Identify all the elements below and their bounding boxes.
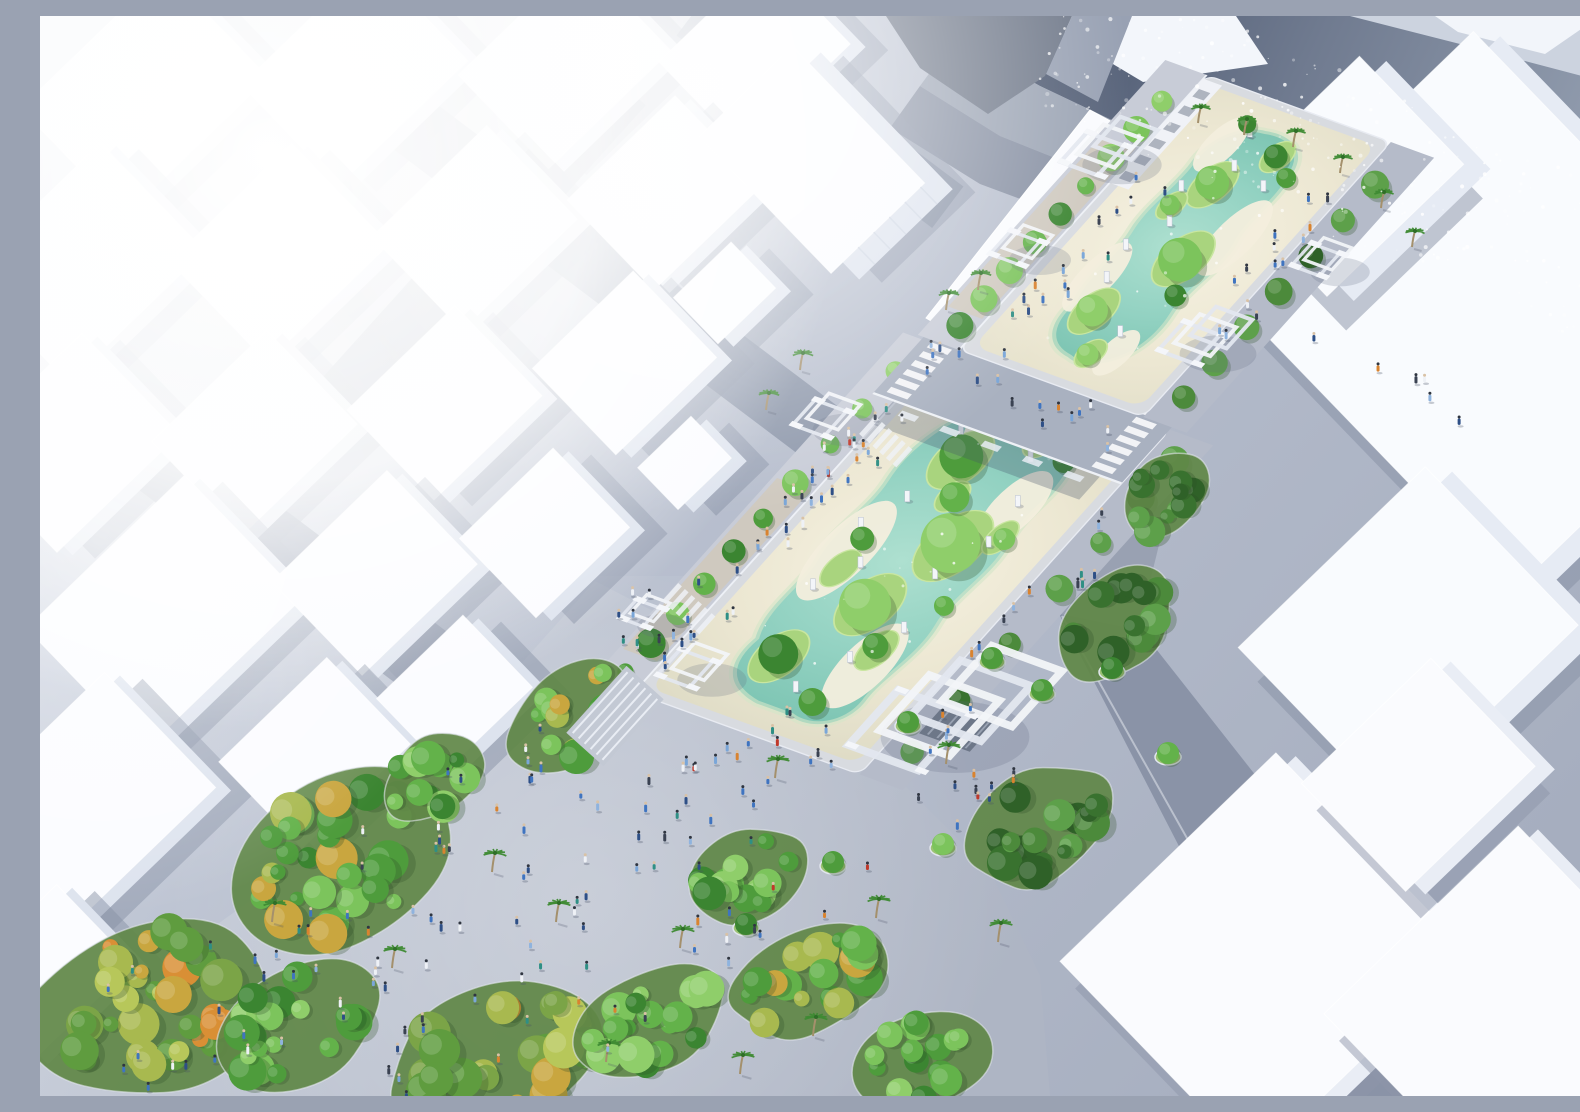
person-shadow (122, 1073, 128, 1075)
water-sparkle (1530, 305, 1532, 307)
palm-crown (1245, 117, 1249, 121)
person (1274, 262, 1277, 267)
person-head (1245, 264, 1248, 267)
person-head (1273, 242, 1276, 245)
water-sparkle (1457, 156, 1459, 158)
water-sparkle (1344, 210, 1348, 214)
water-sparkle (1283, 83, 1287, 87)
water-sparkle (1443, 151, 1445, 153)
water-sparkle (1300, 117, 1302, 119)
water-sparkle (1465, 245, 1469, 249)
person (403, 1029, 406, 1035)
person (577, 999, 580, 1004)
person-head (1312, 332, 1315, 335)
water-sparkle (1406, 110, 1408, 112)
palm-crown (1413, 229, 1417, 233)
water-sparkle (1316, 138, 1318, 140)
person-shadow (1458, 425, 1464, 427)
water-sparkle (1375, 120, 1379, 124)
water-sparkle (1236, 147, 1239, 150)
water-sparkle (1503, 209, 1507, 213)
water-sparkle (1396, 250, 1397, 251)
water-sparkle (1447, 259, 1449, 261)
water-sparkle (1314, 68, 1315, 69)
person (372, 981, 375, 986)
person-head (280, 1036, 283, 1039)
water-sparkle (1311, 167, 1315, 171)
water-sparkle (1256, 35, 1259, 38)
person (122, 1067, 125, 1073)
water-sparkle (1572, 325, 1575, 328)
water-sparkle (1246, 39, 1250, 43)
person-shadow (137, 1060, 143, 1062)
water-sparkle (1452, 136, 1454, 138)
person-head (421, 1012, 424, 1015)
person-head (1274, 259, 1277, 262)
water-sparkle (1196, 155, 1200, 159)
water-sparkle (1220, 227, 1223, 230)
water-sparkle (1525, 250, 1528, 253)
person-shadow (184, 1070, 190, 1072)
person-shadow (1274, 268, 1280, 270)
water-sparkle (1281, 209, 1284, 212)
water-sparkle (1327, 156, 1330, 159)
water-sparkle (1569, 190, 1571, 192)
person-shadow (339, 1008, 345, 1010)
water-sparkle (1260, 96, 1262, 98)
person (339, 1000, 342, 1008)
person (246, 1046, 249, 1054)
person (1307, 196, 1310, 202)
water-sparkle (1526, 260, 1528, 262)
person (137, 1053, 140, 1059)
person-shadow (497, 1063, 503, 1065)
person-shadow (171, 1070, 177, 1072)
person-shadow (1281, 266, 1287, 268)
person-shadow (1273, 251, 1279, 253)
water-sparkle (1300, 96, 1303, 99)
person-head (184, 1060, 187, 1063)
water-sparkle (1466, 211, 1470, 215)
person (613, 1008, 616, 1013)
water-sparkle (1495, 198, 1499, 202)
person-head (606, 1043, 609, 1046)
tree-highlight (1268, 280, 1282, 294)
person (387, 1068, 390, 1075)
person-shadow (1414, 384, 1420, 386)
person-shadow (1246, 309, 1252, 311)
water-sparkle (1212, 197, 1215, 200)
person-head (1246, 299, 1249, 302)
person-head (396, 1043, 399, 1046)
water-sparkle (1574, 209, 1575, 210)
water-sparkle (1258, 214, 1261, 217)
water-sparkle (1341, 188, 1344, 191)
person-head (387, 1065, 390, 1068)
water-sparkle (1561, 330, 1564, 333)
water-sparkle (1256, 152, 1259, 155)
person-head (1326, 192, 1329, 195)
person-shadow (1428, 402, 1434, 404)
water-sparkle (1250, 109, 1254, 113)
person-shadow (387, 1075, 393, 1077)
palm-crown (1341, 155, 1345, 159)
water-sparkle (1447, 230, 1450, 233)
person (520, 975, 523, 982)
water-sparkle (1346, 103, 1350, 107)
person-shadow (1225, 340, 1231, 342)
water-sparkle (1213, 170, 1216, 173)
water-sparkle (1518, 292, 1520, 294)
water-sparkle (1314, 64, 1316, 66)
person (644, 1015, 647, 1022)
person-head (246, 1043, 249, 1046)
water-sparkle (1506, 223, 1508, 225)
water-sparkle (1563, 305, 1565, 307)
water-sparkle (1421, 213, 1424, 216)
scene-svg (40, 16, 1580, 1096)
water-sparkle (1419, 253, 1423, 257)
person-head (1307, 193, 1310, 196)
person-head (577, 996, 580, 999)
water-sparkle (1433, 254, 1435, 256)
water-sparkle (1514, 260, 1516, 262)
water-sparkle (1507, 215, 1509, 217)
person-shadow (1233, 284, 1239, 286)
water-sparkle (1363, 164, 1365, 166)
water-sparkle (1230, 54, 1233, 57)
person-head (644, 1012, 647, 1015)
person (1273, 245, 1276, 250)
water-sparkle (1352, 97, 1355, 100)
person-shadow (606, 1052, 612, 1054)
water-sparkle (1340, 143, 1343, 146)
person-shadow (342, 1020, 348, 1022)
person-head (107, 983, 110, 986)
person-shadow (262, 982, 268, 984)
water-sparkle (1343, 184, 1346, 187)
water-sparkle (1307, 142, 1310, 145)
person-head (405, 1090, 408, 1093)
water-sparkle (1290, 111, 1293, 114)
water-sparkle (1483, 172, 1487, 176)
tree-highlight (1278, 169, 1288, 179)
water-sparkle (1371, 144, 1374, 147)
water-sparkle (1216, 70, 1218, 72)
water-sparkle (1342, 210, 1344, 212)
water-sparkle (1252, 180, 1254, 182)
water-sparkle (1221, 19, 1224, 22)
person (606, 1046, 609, 1052)
tree-highlight (1159, 744, 1170, 755)
water-sparkle (1264, 97, 1266, 99)
person (405, 1093, 408, 1096)
person (218, 1007, 221, 1015)
water-sparkle (1299, 124, 1301, 126)
water-sparkle (1210, 41, 1214, 45)
water-sparkle (1393, 260, 1395, 262)
person (1414, 376, 1417, 383)
water-sparkle (1426, 228, 1428, 230)
person-head (213, 1054, 216, 1057)
person-shadow (1326, 203, 1332, 205)
water-sparkle (1339, 166, 1341, 168)
water-sparkle (1444, 136, 1446, 138)
person-head (171, 1060, 174, 1063)
person (1233, 278, 1236, 284)
water-sparkle (1244, 171, 1247, 174)
water-sparkle (1337, 68, 1341, 72)
person (1309, 224, 1312, 231)
person (171, 1063, 174, 1070)
person-shadow (246, 1055, 252, 1057)
person (242, 1032, 245, 1039)
water-sparkle (1522, 172, 1526, 176)
water-sparkle (1313, 137, 1314, 138)
water-sparkle (1347, 97, 1349, 99)
water-sparkle (1509, 195, 1510, 196)
water-sparkle (1523, 210, 1524, 211)
person-shadow (372, 986, 378, 988)
person-head (397, 1073, 400, 1076)
person-head (137, 1050, 140, 1053)
person-shadow (213, 1063, 219, 1065)
water-sparkle (1359, 154, 1363, 158)
water-sparkle (1205, 26, 1209, 30)
water-sparkle (1381, 190, 1383, 192)
person-head (1218, 324, 1221, 327)
person (147, 1085, 150, 1091)
water-sparkle (1462, 247, 1465, 250)
water-sparkle (1243, 44, 1246, 47)
water-sparkle (1566, 326, 1568, 328)
water-sparkle (1318, 122, 1320, 124)
person-shadow (1273, 239, 1279, 241)
person-head (1428, 392, 1431, 395)
water-sparkle (1401, 213, 1403, 215)
palm-crown (1199, 105, 1203, 109)
person (1428, 395, 1431, 402)
water-sparkle (1276, 99, 1278, 101)
person-head (122, 1064, 125, 1067)
water-sparkle (1279, 136, 1281, 138)
water-sparkle (1258, 86, 1262, 90)
water-sparkle (1414, 180, 1416, 182)
person-shadow (242, 1039, 248, 1041)
person (184, 1063, 187, 1070)
person-head (1273, 229, 1276, 232)
palm-crown (1382, 190, 1386, 194)
person-shadow (422, 1033, 428, 1035)
water-sparkle (1362, 186, 1365, 189)
water-sparkle (1341, 208, 1343, 210)
water-sparkle (1424, 245, 1428, 249)
person (473, 997, 476, 1003)
tree-highlight (1364, 173, 1378, 187)
person (1246, 302, 1249, 308)
water-sparkle (1404, 211, 1406, 213)
water-sparkle (1545, 281, 1547, 283)
person-shadow (473, 1003, 479, 1005)
person (107, 986, 110, 992)
person-shadow (1245, 272, 1251, 274)
water-sparkle (1309, 119, 1312, 122)
person-head (1233, 275, 1236, 278)
tree-highlight (1333, 210, 1345, 222)
person-shadow (280, 1045, 286, 1047)
palm-crown (814, 1015, 818, 1019)
person-shadow (1307, 202, 1313, 204)
water-sparkle (1273, 171, 1276, 174)
water-sparkle (1293, 181, 1295, 183)
water-sparkle (1281, 106, 1283, 108)
stone-monolith (1261, 180, 1266, 191)
person-shadow (1312, 342, 1318, 344)
person-head (1309, 221, 1312, 224)
water-sparkle (1542, 259, 1546, 263)
person-shadow (1423, 383, 1429, 385)
water-sparkle (1287, 109, 1290, 112)
haze (40, 156, 560, 976)
water-sparkle (1229, 158, 1233, 162)
water-sparkle (1558, 330, 1560, 332)
person-shadow (396, 1053, 402, 1055)
person-head (1414, 373, 1417, 376)
person-head (1225, 329, 1228, 332)
palm-crown (741, 1053, 745, 1057)
tree-highlight (1266, 146, 1278, 158)
person (1218, 327, 1221, 334)
person-head (218, 1004, 221, 1007)
water-sparkle (1563, 313, 1567, 317)
water-sparkle (1222, 51, 1224, 53)
water-sparkle (1195, 84, 1199, 88)
person (397, 1076, 400, 1082)
person-shadow (1218, 335, 1224, 337)
person-head (372, 978, 375, 981)
person (497, 1056, 500, 1062)
tree-highlight (1199, 168, 1216, 185)
haze-overlay (40, 16, 1190, 976)
water-sparkle (1428, 141, 1431, 144)
water-sparkle (1541, 205, 1545, 209)
person-head (147, 1082, 150, 1085)
water-sparkle (1419, 232, 1422, 235)
water-sparkle (1206, 120, 1208, 122)
person-head (1281, 257, 1284, 260)
water-sparkle (1251, 163, 1253, 165)
water-sparkle (1212, 177, 1213, 178)
water-sparkle (1352, 138, 1355, 141)
person (422, 1026, 425, 1033)
water-sparkle (1499, 160, 1501, 162)
person (1377, 365, 1380, 371)
person (342, 1014, 345, 1019)
water-sparkle (1365, 142, 1368, 145)
water-sparkle (1549, 313, 1552, 316)
person-head (526, 1015, 529, 1018)
person-head (422, 1023, 425, 1026)
person (1225, 332, 1228, 339)
pavilion-shadow (1180, 335, 1257, 372)
person-shadow (384, 992, 390, 994)
water-sparkle (1403, 99, 1406, 102)
water-sparkle (1440, 170, 1442, 172)
person (1255, 313, 1258, 319)
water-sparkle (1402, 202, 1404, 204)
palm-crown (1294, 129, 1298, 133)
water-sparkle (1460, 184, 1464, 188)
water-sparkle (1495, 153, 1498, 156)
person (526, 1018, 529, 1024)
water-sparkle (1530, 187, 1531, 188)
person-shadow (526, 1024, 532, 1026)
person (384, 984, 387, 991)
person-shadow (577, 1005, 583, 1007)
water-sparkle (1436, 256, 1440, 260)
water-sparkle (1476, 147, 1478, 149)
water-sparkle (1369, 108, 1372, 111)
person (1273, 232, 1276, 239)
person (1281, 260, 1284, 266)
person-shadow (1309, 232, 1315, 234)
person-shadow (520, 983, 526, 985)
water-sparkle (1193, 19, 1196, 22)
water-sparkle (1245, 150, 1248, 153)
person-shadow (1302, 243, 1308, 245)
water-sparkle (1296, 190, 1300, 194)
water-sparkle (1556, 165, 1560, 169)
water-sparkle (1215, 262, 1218, 265)
person-head (403, 1026, 406, 1029)
person (396, 1046, 399, 1053)
person-head (473, 994, 476, 997)
water-sparkle (1557, 266, 1560, 269)
person-shadow (292, 980, 298, 982)
person (1245, 267, 1248, 272)
water-sparkle (1490, 245, 1493, 248)
water-sparkle (1233, 137, 1237, 141)
person-shadow (107, 992, 113, 994)
person (1312, 335, 1315, 342)
water-sparkle (1364, 245, 1366, 247)
person-head (339, 997, 342, 1000)
water-sparkle (1380, 159, 1384, 163)
water-sparkle (1201, 56, 1204, 59)
person (1423, 377, 1426, 383)
water-sparkle (1231, 78, 1235, 82)
water-sparkle (1442, 209, 1443, 210)
water-sparkle (1293, 127, 1294, 128)
architectural-rendering (40, 16, 1580, 1096)
water-sparkle (1519, 182, 1522, 185)
water-sparkle (1306, 74, 1307, 75)
water-sparkle (1333, 236, 1335, 238)
water-sparkle (1273, 175, 1274, 176)
person (421, 1015, 424, 1022)
water-sparkle (1412, 107, 1413, 108)
person-head (1302, 233, 1305, 236)
person-head (242, 1029, 245, 1032)
water-sparkle (1512, 158, 1513, 159)
water-sparkle (1243, 141, 1245, 143)
stone-monolith (1232, 160, 1237, 171)
person-head (497, 1053, 500, 1056)
person-head (1423, 374, 1426, 377)
water-sparkle (1379, 92, 1381, 94)
water-sparkle (1457, 247, 1459, 249)
water-sparkle (1246, 30, 1249, 33)
